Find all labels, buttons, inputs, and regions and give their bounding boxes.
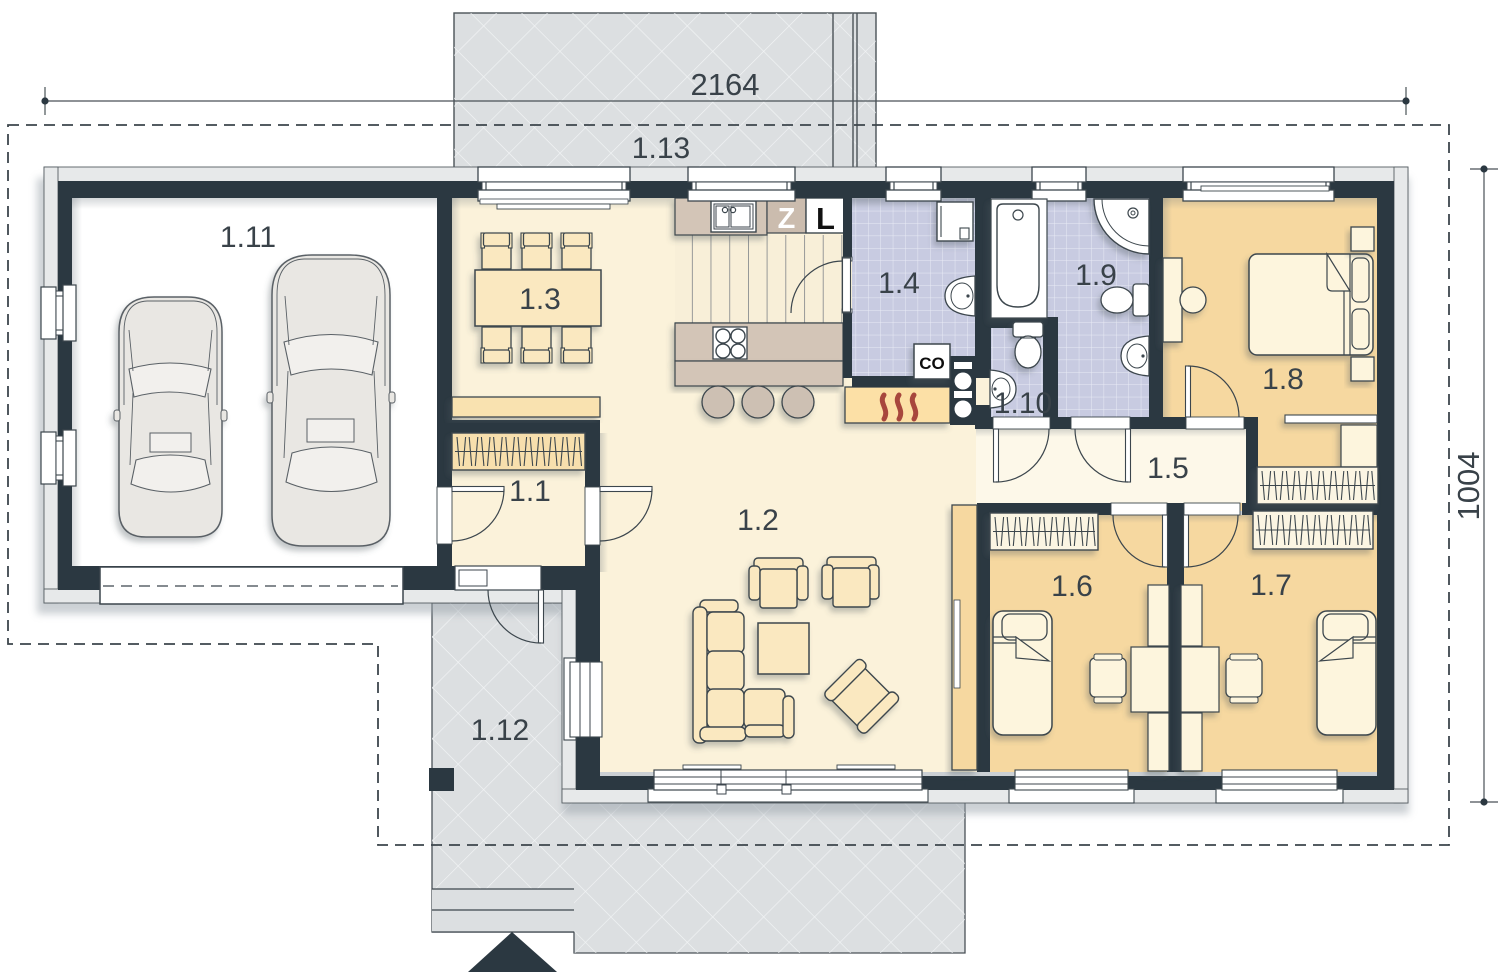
svg-text:CO: CO [919, 354, 945, 373]
svg-text:1.9: 1.9 [1075, 259, 1117, 292]
svg-text:1.7: 1.7 [1250, 569, 1292, 602]
svg-text:1004: 1004 [1451, 452, 1486, 521]
svg-text:1.10: 1.10 [994, 387, 1052, 420]
svg-text:L: L [816, 201, 835, 236]
svg-text:1.12: 1.12 [471, 714, 529, 747]
svg-text:1.8: 1.8 [1262, 363, 1304, 396]
svg-text:2164: 2164 [691, 67, 760, 102]
svg-text:1.5: 1.5 [1147, 452, 1189, 485]
svg-text:1.1: 1.1 [509, 475, 551, 508]
svg-text:1.6: 1.6 [1051, 570, 1093, 603]
svg-text:1.13: 1.13 [632, 132, 690, 165]
svg-text:Z: Z [778, 203, 796, 235]
svg-text:1.4: 1.4 [878, 267, 920, 300]
svg-text:1.3: 1.3 [519, 283, 561, 316]
svg-text:1.2: 1.2 [737, 504, 779, 537]
svg-text:1.11: 1.11 [220, 221, 276, 254]
